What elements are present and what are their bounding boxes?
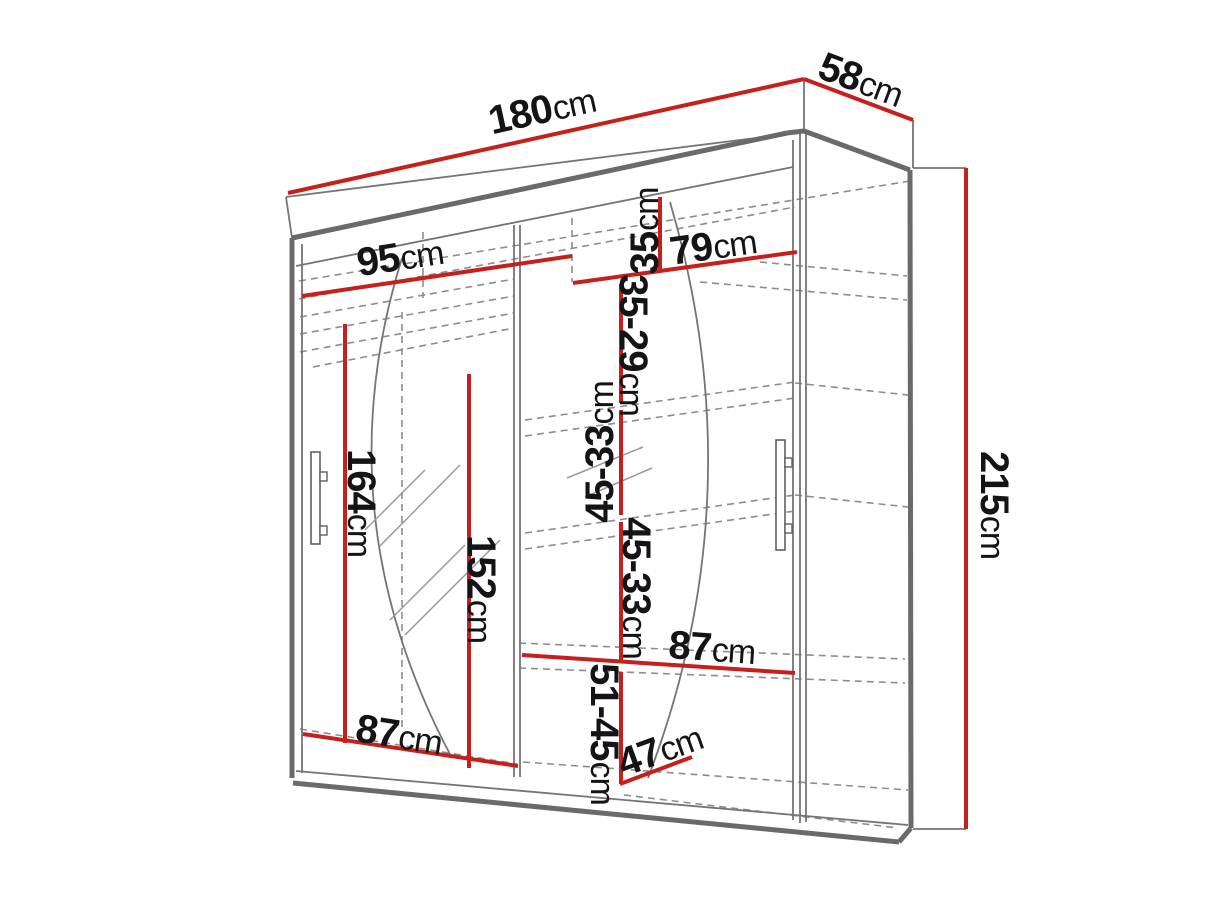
hidden-edge-dashed-line bbox=[300, 296, 514, 334]
left-door-handle-mount bbox=[320, 472, 327, 481]
mirror-hatch-line bbox=[380, 465, 460, 546]
hidden-edge-dashed-line bbox=[525, 511, 795, 549]
hidden-edge-dashed-line bbox=[525, 382, 795, 420]
door-swing-arc bbox=[372, 258, 452, 758]
hidden-edge-dashed-line bbox=[525, 495, 795, 533]
left-door-handle-mount bbox=[320, 526, 327, 535]
cabinet-edge-thick-line bbox=[910, 170, 911, 828]
cabinet-edge-thin-line bbox=[296, 771, 908, 825]
hidden-edge-dashed-line bbox=[795, 383, 908, 395]
left-door-handle bbox=[311, 452, 320, 544]
cabinet-edge-thin-line bbox=[296, 167, 793, 266]
hidden-edge-dashed-line bbox=[795, 495, 908, 507]
right-door-handle-mount bbox=[785, 524, 792, 533]
hidden-edge-dashed-line bbox=[300, 279, 514, 317]
cabinet-edge-thick-line bbox=[293, 783, 899, 842]
hidden-edge-dashed-line bbox=[299, 181, 910, 281]
door-swing-arc bbox=[648, 202, 708, 778]
mirror-hatch-line bbox=[585, 468, 652, 497]
diagram-linework bbox=[0, 0, 1213, 910]
right-door-handle bbox=[776, 440, 785, 550]
hidden-edge-dashed-line bbox=[525, 398, 795, 436]
hidden-edge-dashed-line bbox=[300, 313, 514, 352]
dimension-line bbox=[288, 79, 804, 193]
dimension-line bbox=[303, 734, 518, 766]
cabinet-edge-thick-line bbox=[899, 828, 911, 842]
dimension-line bbox=[522, 655, 795, 673]
cabinet-edge-thin-line bbox=[286, 132, 804, 197]
cabinet-edge-thick-line bbox=[804, 131, 910, 170]
hidden-edge-dashed-line bbox=[519, 643, 905, 659]
hidden-edge-dashed-line bbox=[700, 282, 907, 300]
dimension-line bbox=[804, 79, 913, 120]
mirror-hatch-line bbox=[567, 447, 643, 478]
dimension-line bbox=[302, 256, 572, 296]
hidden-edge-dashed-line bbox=[519, 668, 905, 683]
cabinet-edge-thin-line bbox=[286, 197, 292, 238]
hidden-edge-dashed-line bbox=[760, 262, 907, 276]
right-door-handle-mount bbox=[785, 458, 792, 467]
wardrobe-dimension-diagram: 180cm58cm215cm95cm79cm35cm35-29cm45-33cm… bbox=[0, 0, 1213, 910]
hidden-edge-dashed-line bbox=[300, 729, 517, 764]
mirror-hatch-line bbox=[405, 540, 500, 635]
cabinet-edge-thick-line bbox=[787, 131, 804, 133]
hidden-edge-dashed-line bbox=[523, 762, 908, 790]
